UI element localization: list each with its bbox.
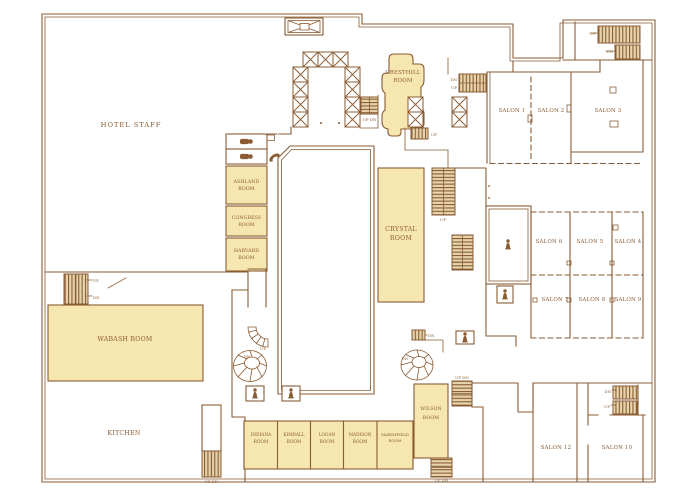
- room-label: CONGRESS: [232, 215, 261, 221]
- room-label: ROOM: [238, 222, 255, 228]
- staircase-icon: UP DN: [360, 95, 378, 128]
- room-harvard: HARVARD ROOM: [226, 238, 267, 271]
- elevator-cab-icon: [408, 112, 423, 127]
- elevator-cab-icon: [345, 67, 360, 82]
- staircase-icon: DN UP: [604, 386, 638, 414]
- stair-label: UP DN: [435, 478, 449, 483]
- elevator-cab-icon: [293, 82, 308, 97]
- room-label: ASHLAND: [233, 179, 260, 185]
- room-kitchen: KITCHEN: [107, 430, 140, 437]
- room-label: ROOM: [238, 186, 255, 192]
- room-label: HOTEL STAFF: [101, 121, 162, 129]
- room-label: KIMBALL: [283, 433, 304, 438]
- statue-niche: [456, 331, 474, 344]
- spiral-staircase-icon: DN: [401, 350, 433, 380]
- escalator-icon: UP: [411, 128, 437, 139]
- stair-label: UP: [431, 132, 437, 137]
- room-label: SALON 3: [595, 108, 622, 114]
- room-label: CRESTHILL: [385, 70, 420, 76]
- room-label: LOGAN: [319, 433, 336, 438]
- hotel-floor-plan: HOTEL STAFF UP DN CRESTHILL ROOM: [0, 0, 700, 500]
- elevator-cab-icon: [293, 97, 308, 112]
- room-label: ROOM: [287, 440, 302, 445]
- staircase-icon: DN: [412, 330, 443, 352]
- salon-block-middle: SALON 6 SALON 5 SALON 4 SALON 7 SALON 8 …: [531, 212, 643, 338]
- elevator-cab-icon: [318, 52, 333, 67]
- room-label: KITCHEN: [107, 430, 140, 437]
- room-label: CRYSTAL: [385, 226, 417, 233]
- stair-label: UP DN: [455, 375, 469, 380]
- room-congress: CONGRESS ROOM: [226, 206, 267, 236]
- staircase-icon: UP DN: [64, 274, 100, 304]
- elevator-cab-icon: [345, 82, 360, 97]
- room-label: ROOM: [423, 415, 440, 421]
- room-label: SALON 1: [499, 108, 526, 114]
- freight-elevator-icon: [285, 18, 323, 35]
- statue-niche: [246, 386, 300, 401]
- stair-label: UP DN: [205, 479, 219, 484]
- room-label: WILSON: [420, 406, 442, 412]
- staircase-icon: UP DN: [563, 22, 652, 60]
- stair-label: DN: [93, 295, 100, 300]
- stair-label: UP: [440, 217, 446, 222]
- stair-label: UP: [590, 31, 596, 36]
- elevator-cab-icon: [452, 97, 467, 112]
- elevator-cab-icon: [293, 112, 308, 127]
- elevator-cab-icon: [345, 112, 360, 127]
- restrooms: [226, 134, 277, 164]
- staircase-icon: DN UP: [448, 58, 486, 92]
- elevator-bank-main: [279, 52, 360, 134]
- room-hotel-staff: HOTEL STAFF: [101, 121, 162, 129]
- room-label: SALON 5: [577, 239, 604, 245]
- stair-label: DN: [604, 389, 611, 394]
- staircase-icon: UP DN: [452, 375, 472, 406]
- salon-block-north: SALON 1 SALON 2 SALON 3: [487, 60, 643, 164]
- room-label: SALON 4: [615, 239, 642, 245]
- room-label: SALON 6: [536, 239, 563, 245]
- room-label: SALON 8: [579, 297, 606, 303]
- stair-label: UP: [604, 404, 610, 409]
- room-ashland: ASHLAND ROOM: [226, 166, 267, 204]
- elevator-cab-icon: [333, 52, 348, 67]
- room-label: ROOM: [238, 255, 255, 261]
- stair-label: UP: [260, 346, 266, 351]
- room-label: ROOM: [393, 78, 412, 84]
- room-label: SALON 10: [602, 445, 633, 451]
- elevator-cab-icon: [345, 97, 360, 112]
- restroom-icon: [240, 139, 253, 144]
- room-wilson: WILSON ROOM: [414, 384, 448, 458]
- room-label: INDIANA: [251, 433, 272, 438]
- room-label: SALON 2: [538, 108, 565, 114]
- room-wabash: WABASH ROOM: [48, 305, 203, 381]
- stair-label: UP: [451, 85, 457, 90]
- escalator-icon: UP: [432, 168, 455, 222]
- stair-label: DN: [428, 333, 435, 338]
- elevator-cab-icon: [293, 67, 308, 82]
- meeting-room-row: INDIANA ROOM KIMBALL ROOM LOGAN ROOM MAD…: [244, 421, 413, 469]
- room-label: SALON 7: [542, 297, 569, 303]
- staircase-icon: [452, 235, 473, 270]
- elevator-bank-east: [408, 97, 467, 127]
- stair-label: DN: [401, 356, 408, 361]
- room-label: ROOM: [353, 440, 368, 445]
- elevator-cab-icon: [303, 52, 318, 67]
- stair-label: DN: [606, 49, 613, 54]
- floor-plan-drawing: HOTEL STAFF UP DN CRESTHILL ROOM: [0, 0, 700, 500]
- stair-label: DN: [244, 354, 251, 359]
- salon-block-south: DN UP SALON 12 SALON 10: [533, 383, 652, 481]
- room-label: ROOM: [390, 235, 413, 242]
- stair-label: UP: [93, 278, 99, 283]
- room-label: ROOM: [389, 438, 402, 443]
- telephone-icon: [267, 135, 281, 163]
- statue-icon: [505, 239, 511, 249]
- restroom-icon: [240, 154, 253, 159]
- spiral-staircase-icon: UP DN: [234, 327, 269, 382]
- room-label: WABASH ROOM: [97, 336, 152, 343]
- room-label: SALON 12: [541, 445, 571, 451]
- room-label: HARVARD: [234, 248, 259, 254]
- room-label: ROOM: [320, 440, 335, 445]
- room-label: MARSHFIELD: [381, 432, 409, 437]
- stair-label: DN: [450, 77, 457, 82]
- staircase-icon: UP DN: [202, 405, 221, 484]
- room-label: ROOM: [254, 440, 269, 445]
- central-hall-walls: [278, 146, 374, 394]
- elevator-cab-icon: [452, 112, 467, 127]
- room-label: SALON 9: [615, 297, 642, 303]
- room-label: MADISON: [349, 433, 372, 438]
- elevator-cab-icon: [408, 97, 423, 112]
- stair-label: UP DN: [363, 117, 377, 122]
- room-crystal: CRYSTAL ROOM: [378, 168, 424, 302]
